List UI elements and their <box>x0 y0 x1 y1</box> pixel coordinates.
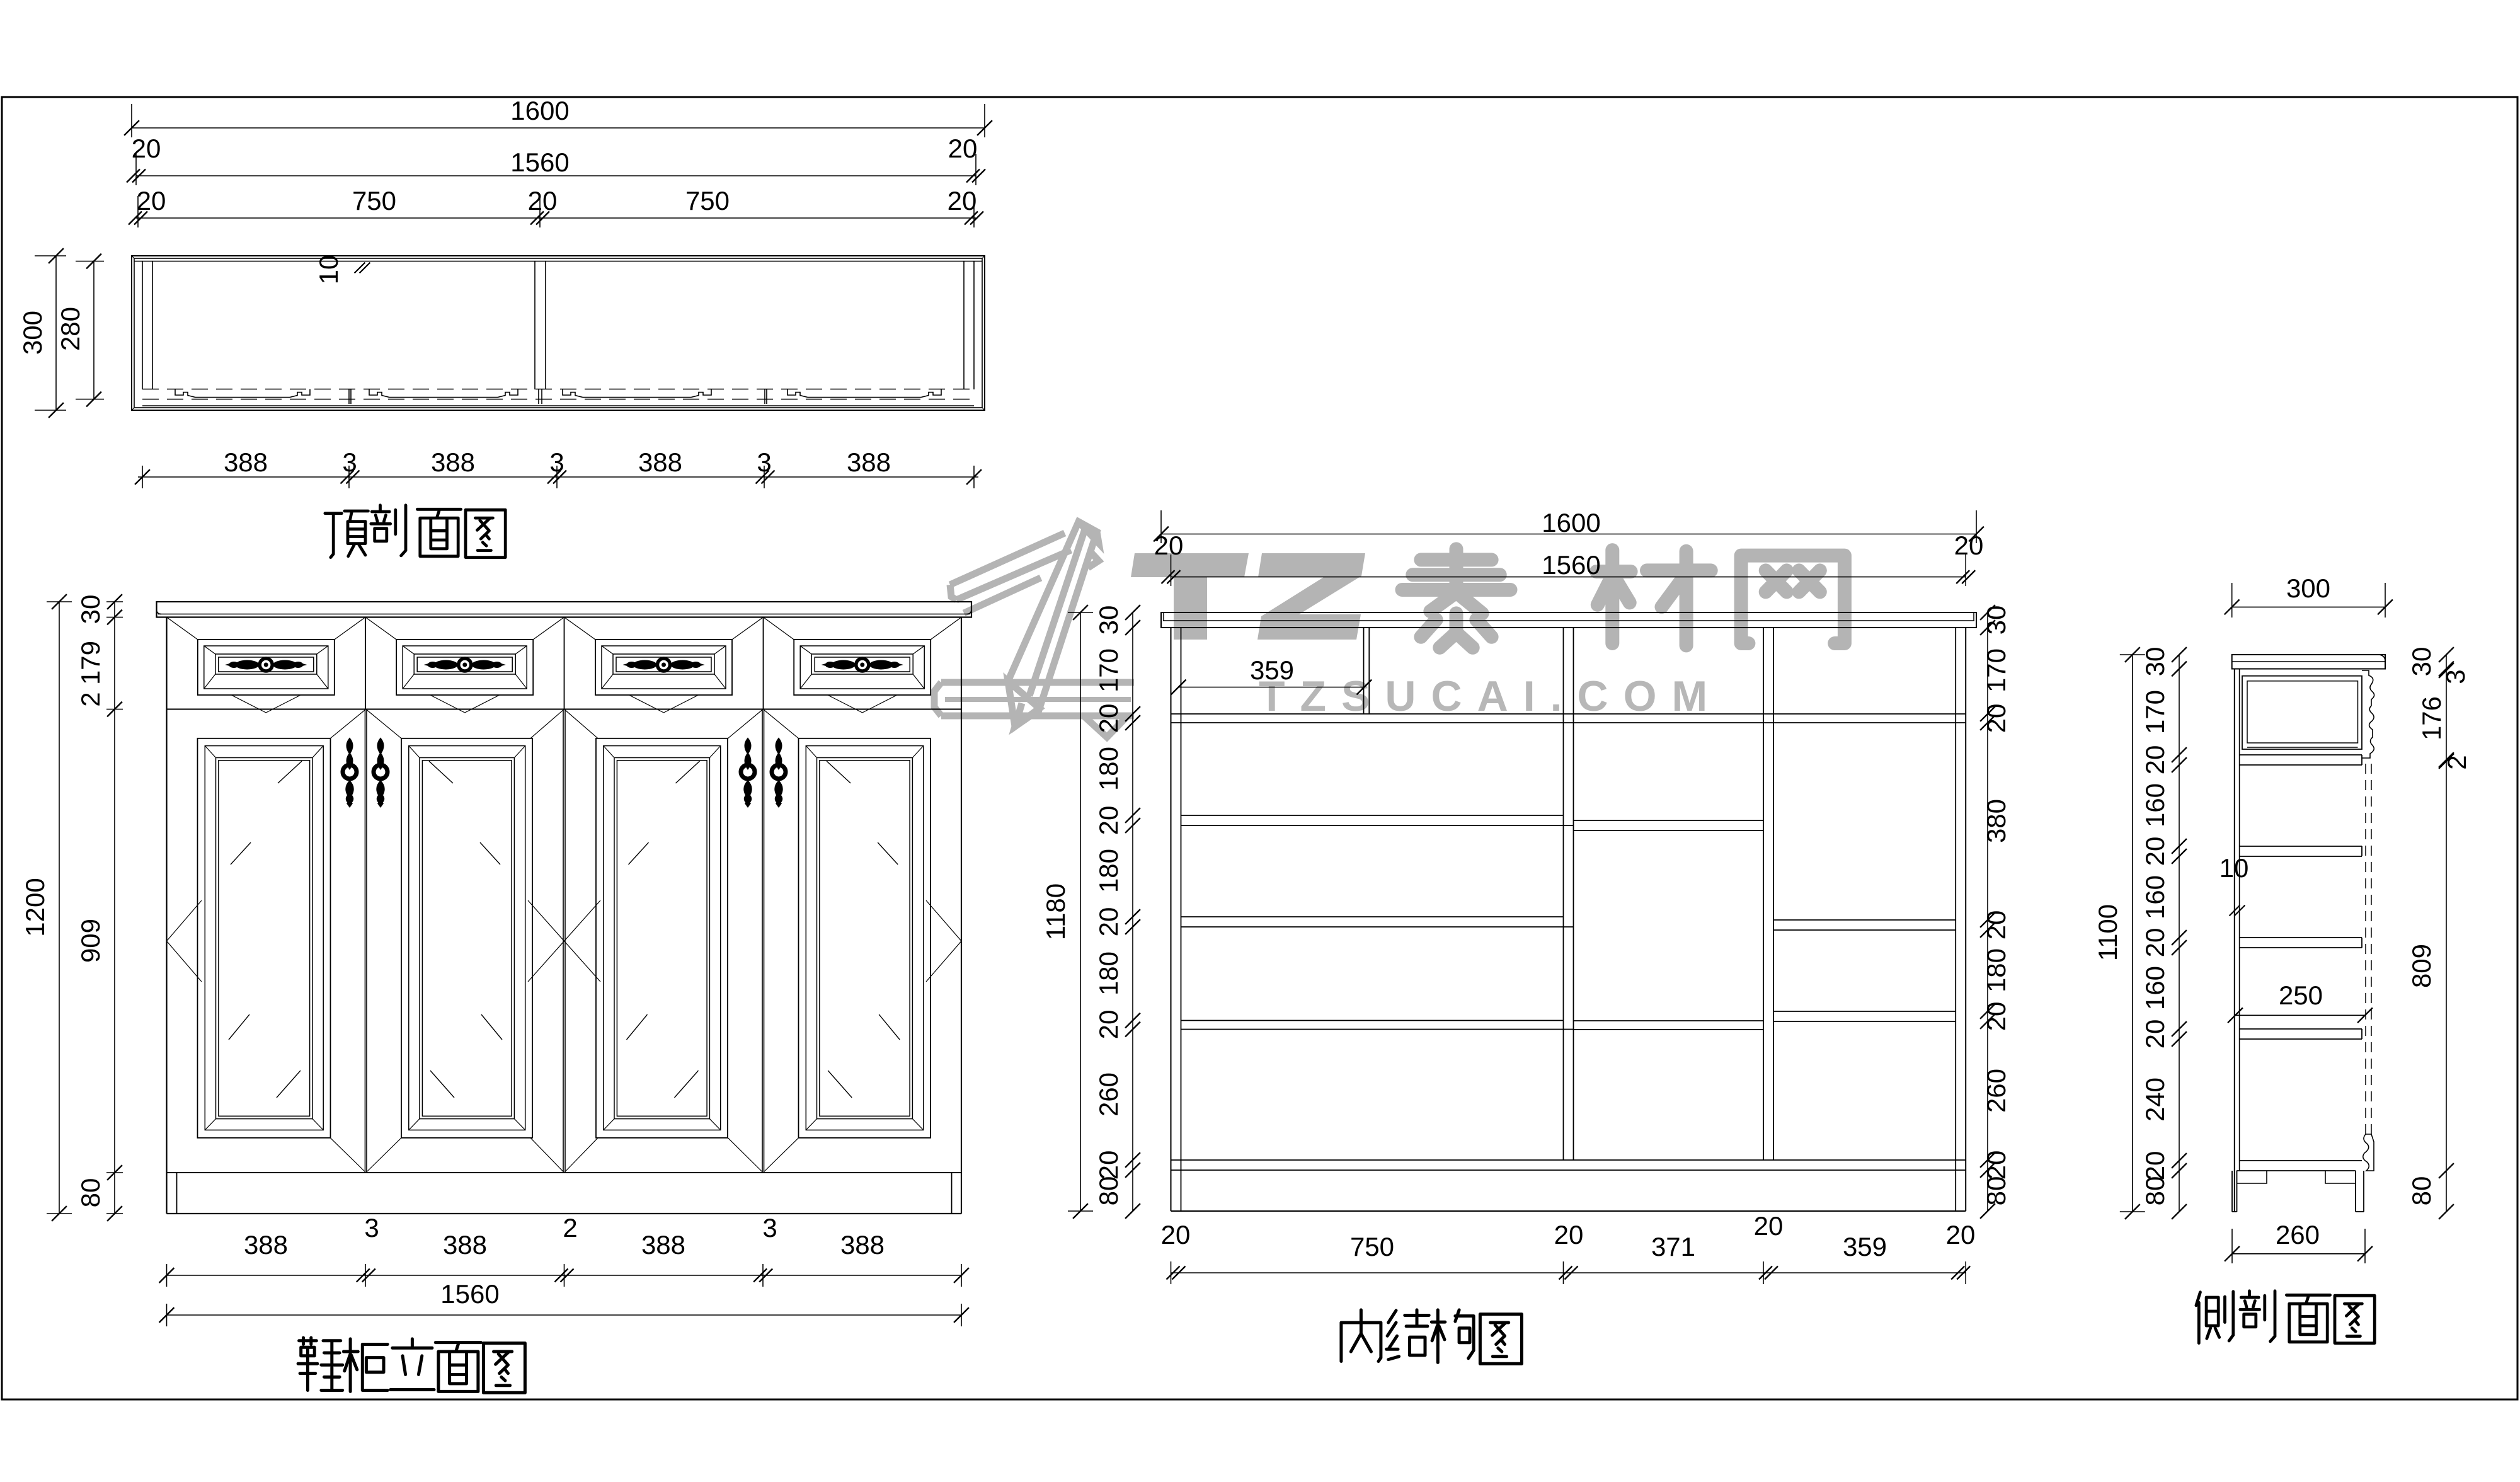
svg-text:20: 20 <box>1554 1220 1584 1249</box>
svg-text:3: 3 <box>762 1213 777 1243</box>
svg-text:1100: 1100 <box>2093 904 2122 961</box>
svg-text:10: 10 <box>314 255 343 285</box>
svg-text:1560: 1560 <box>510 147 569 177</box>
svg-text:20: 20 <box>1161 1220 1191 1249</box>
svg-text:1600: 1600 <box>510 96 569 125</box>
svg-text:300: 300 <box>18 311 47 355</box>
svg-text:170: 170 <box>1981 648 2011 692</box>
svg-text:388: 388 <box>431 447 475 477</box>
svg-text:359: 359 <box>1843 1232 1887 1261</box>
svg-text:20: 20 <box>1094 1010 1123 1040</box>
svg-text:170: 170 <box>1094 648 1123 692</box>
svg-text:388: 388 <box>840 1230 885 1260</box>
svg-text:20: 20 <box>2140 837 2170 866</box>
svg-text:20: 20 <box>2140 928 2170 958</box>
svg-text:1200: 1200 <box>20 878 50 936</box>
svg-text:2: 2 <box>2442 755 2471 769</box>
svg-text:809: 809 <box>2407 944 2436 988</box>
svg-text:180: 180 <box>1094 849 1123 893</box>
svg-text:30: 30 <box>1094 606 1123 635</box>
svg-text:20: 20 <box>948 134 978 163</box>
svg-text:2: 2 <box>563 1213 577 1243</box>
svg-text:20: 20 <box>1154 531 1184 560</box>
svg-text:80: 80 <box>1094 1176 1123 1206</box>
svg-text:388: 388 <box>847 447 891 477</box>
svg-text:20: 20 <box>1954 531 1984 560</box>
svg-text:176: 176 <box>2417 696 2446 740</box>
svg-text:20: 20 <box>137 186 166 215</box>
svg-text:80: 80 <box>1981 1176 2011 1206</box>
svg-text:20: 20 <box>1981 910 2011 940</box>
svg-text:80: 80 <box>2140 1176 2170 1206</box>
svg-text:909: 909 <box>76 919 105 963</box>
svg-text:250: 250 <box>2279 980 2323 1010</box>
svg-text:380: 380 <box>1981 799 2011 843</box>
svg-text:300: 300 <box>2286 573 2330 603</box>
svg-text:750: 750 <box>352 186 396 215</box>
svg-text:160: 160 <box>2140 966 2170 1010</box>
svg-text:20: 20 <box>1981 1002 2011 1031</box>
svg-text:371: 371 <box>1651 1232 1695 1261</box>
svg-text:3: 3 <box>342 447 357 477</box>
svg-text:180: 180 <box>1094 951 1123 996</box>
svg-text:160: 160 <box>2140 875 2170 919</box>
svg-text:20: 20 <box>1981 1151 2011 1180</box>
svg-text:20: 20 <box>1094 1151 1123 1180</box>
svg-text:180: 180 <box>1981 948 2011 992</box>
svg-text:170: 170 <box>2140 690 2170 734</box>
svg-text:1600: 1600 <box>1542 508 1600 537</box>
svg-text:388: 388 <box>638 447 682 477</box>
svg-text:10: 10 <box>2219 853 2249 883</box>
svg-text:388: 388 <box>641 1230 685 1260</box>
svg-text:20: 20 <box>1981 704 2011 733</box>
svg-text:20: 20 <box>2140 1151 2170 1181</box>
svg-text:30: 30 <box>1981 606 2011 635</box>
svg-text:3: 3 <box>364 1213 379 1243</box>
svg-text:80: 80 <box>76 1178 105 1208</box>
svg-text:30: 30 <box>2140 647 2170 677</box>
svg-text:179: 179 <box>76 641 105 685</box>
svg-text:20: 20 <box>1094 907 1123 937</box>
svg-text:180: 180 <box>1094 747 1123 791</box>
svg-text:20: 20 <box>2140 1020 2170 1049</box>
svg-text:388: 388 <box>224 447 268 477</box>
svg-text:260: 260 <box>1094 1072 1123 1117</box>
svg-text:20: 20 <box>1946 1220 1976 1249</box>
svg-text:80: 80 <box>2407 1176 2436 1206</box>
svg-text:160: 160 <box>2140 783 2170 827</box>
svg-text:3: 3 <box>757 447 771 477</box>
svg-text:20: 20 <box>1094 806 1123 836</box>
svg-text:20: 20 <box>1754 1211 1784 1241</box>
svg-text:240: 240 <box>2140 1077 2170 1122</box>
svg-text:20: 20 <box>528 186 558 215</box>
svg-text:20: 20 <box>1094 704 1123 733</box>
svg-text:TZSUCAI.COM: TZSUCAI.COM <box>1259 672 1722 720</box>
svg-text:750: 750 <box>685 186 730 215</box>
svg-text:280: 280 <box>55 307 85 351</box>
svg-text:1560: 1560 <box>440 1279 499 1309</box>
svg-text:3: 3 <box>2441 669 2470 684</box>
svg-text:2: 2 <box>76 692 105 706</box>
svg-text:1180: 1180 <box>1041 883 1070 940</box>
svg-text:30: 30 <box>2407 647 2436 677</box>
svg-text:3: 3 <box>549 447 564 477</box>
svg-text:260: 260 <box>2276 1220 2320 1249</box>
svg-text:750: 750 <box>1350 1232 1394 1261</box>
svg-text:1560: 1560 <box>1542 550 1600 580</box>
svg-text:359: 359 <box>1250 655 1294 685</box>
svg-text:30: 30 <box>76 595 105 624</box>
svg-text:388: 388 <box>244 1230 288 1260</box>
svg-text:20: 20 <box>2140 745 2170 775</box>
svg-text:388: 388 <box>443 1230 487 1260</box>
svg-text:260: 260 <box>1981 1069 2011 1113</box>
svg-text:20: 20 <box>948 186 977 215</box>
